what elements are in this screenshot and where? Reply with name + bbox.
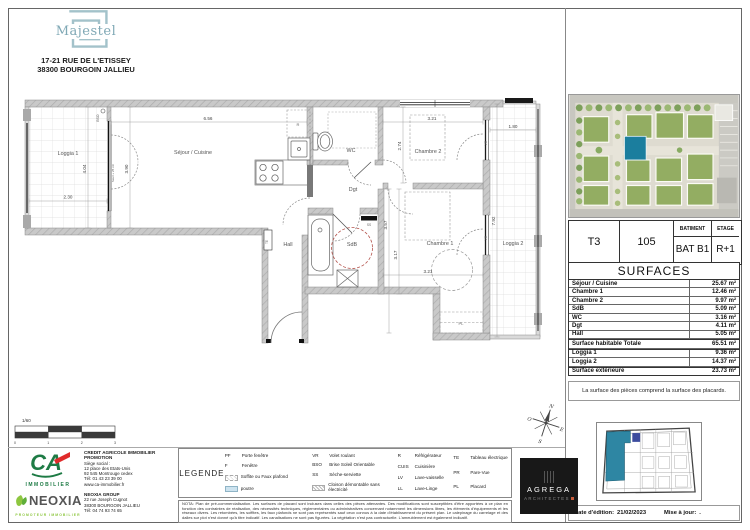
- surface-row: Chambre 29.97 m²: [569, 297, 739, 305]
- te-label: TE: [265, 240, 269, 244]
- dim-loggia1-width: 2.30: [64, 195, 73, 200]
- address-line1: 17-21 RUE DE L'ETISSEY: [0, 56, 172, 65]
- entry-thresholds: [266, 339, 304, 343]
- key-plan-stairwell: [632, 433, 640, 442]
- door-swings: [111, 134, 483, 343]
- architect-subtitle: ARCHITECTES: [524, 496, 574, 501]
- surface-value: 12.46 m²: [689, 288, 739, 295]
- dim-sejour-width: 6.56: [204, 116, 213, 121]
- legend-label: Porte fenêtre: [242, 454, 312, 459]
- surface-row: SdB5.09 m²: [569, 305, 739, 313]
- room-label-sdb: SdB: [347, 242, 358, 248]
- architect-name: AGREGA: [527, 485, 571, 494]
- surface-label: Hall: [569, 331, 689, 337]
- project-address: 17-21 RUE DE L'ETISSEY 38300 BOURGOIN JA…: [0, 56, 172, 74]
- surface-exterior-row: Surface extérieure23.73 m²: [569, 367, 739, 375]
- dim-chambre2-width: 3.21: [428, 116, 437, 121]
- surface-value: 9.36 m²: [689, 350, 739, 357]
- legend-column-3: RRéfrigérateur CUISCuisinière LVLave-vai…: [398, 449, 454, 497]
- loggia-tile-floors: [29, 104, 536, 337]
- unit-type: T3: [569, 221, 619, 262]
- soffite-swatch-icon: [225, 475, 238, 481]
- furniture-outlines: [405, 115, 483, 333]
- nota-disclaimer: NOTA: Plan de pré-commercialisation. Les…: [178, 500, 512, 523]
- floor-plan-sheet: 6.56 3.21 1.80 2.30 3.21 4.04 3.90 2.74 …: [0, 0, 750, 530]
- legend-column-2: VRVolet roulant BSOBrise Soleil Orientab…: [312, 449, 397, 497]
- ca-immobilier-logo: CA IMMOBILIER: [12, 450, 84, 488]
- room-label-hall: Hall: [283, 242, 292, 248]
- wc-fixtures: [313, 112, 376, 151]
- legend-label: Pare-Vue: [470, 471, 511, 476]
- batiment-value: BAT B1: [673, 237, 711, 262]
- edition-date-row: Date d'édition: 21/02/2023 Mise à jour: …: [568, 505, 740, 521]
- surface-value: 25.67 m²: [689, 280, 739, 287]
- surface-label: Loggia 1: [569, 350, 689, 356]
- dim-loggia2-width: 1.80: [509, 124, 518, 129]
- legend-column-1: PFPorte fenêtre FFenêtre Soffite ou Faux…: [225, 449, 312, 497]
- compass-north: N: [547, 403, 555, 411]
- surface-value: 14.37 m²: [689, 358, 739, 365]
- scale-tick-3: 3: [114, 441, 116, 445]
- highlighted-building: [624, 136, 646, 160]
- ca-immobilier-row: CA IMMOBILIER CREDIT AGRICOLE IMMOBILIER…: [12, 450, 174, 488]
- etage-header: ETAGE: [711, 221, 739, 237]
- key-plan-drawing: [597, 423, 701, 500]
- seuil-label: Seuil + 25 cm: [111, 163, 115, 182]
- surface-label: Chambre 2: [569, 298, 689, 304]
- surface-label: Dgt: [569, 323, 689, 329]
- room-label-dgt: Dgt: [349, 187, 358, 193]
- ss-label: SS: [367, 223, 371, 227]
- ca-logo-subtitle: IMMOBILIER: [12, 482, 84, 488]
- surface-value: 65.51 m²: [690, 340, 739, 347]
- compass-rose: N S E O: [521, 398, 565, 445]
- neoxia-text: NEOXIA GROUP 22 rue Joseph Cugnot 38300 …: [84, 492, 174, 513]
- surface-value: 3.16 m²: [689, 314, 739, 321]
- surface-label: SdB: [569, 306, 689, 312]
- surface-label: Surface extérieure: [569, 368, 690, 374]
- legend-label: Placard: [470, 485, 511, 490]
- site-plan-image: [568, 94, 740, 218]
- surfaces-title: SURFACES: [568, 262, 740, 280]
- neoxia-logo-letters: NEOXIA: [29, 493, 82, 508]
- edition-date-value: 21/02/2023: [617, 510, 646, 516]
- update-value: .: [699, 510, 701, 516]
- vr-label-chambre2: VR: [484, 140, 488, 145]
- surface-value: 5.05 m²: [689, 331, 739, 338]
- neoxia-logo-subtitle: PROMOTEUR IMMOBILIER: [12, 513, 84, 517]
- surface-label: Loggia 2: [569, 359, 689, 365]
- legend-abbr: TE: [453, 456, 467, 461]
- surface-value: 23.73 m²: [690, 368, 739, 375]
- neoxia-row: NEOXIA PROMOTEUR IMMOBILIER NEOXIA GROUP…: [12, 492, 174, 517]
- dim-chambre1-height: 3.57: [383, 220, 388, 229]
- neoxia-line: Tél: 04 74 93 74 65: [84, 508, 174, 513]
- etage-value: R+1: [711, 237, 739, 262]
- pl-label: PL: [459, 321, 465, 326]
- compass-west: O: [526, 416, 532, 423]
- vr-label-chambre1: VR: [484, 235, 488, 240]
- legend-abbr: F: [225, 464, 239, 469]
- legend-label: poutre: [241, 487, 312, 492]
- surface-value: 4.11 m²: [689, 322, 739, 329]
- ca-immobilier-text: CREDIT AGRICOLE IMMOBILIER PROMOTION Siè…: [84, 450, 174, 487]
- compass-south: S: [537, 439, 543, 445]
- legend-abbr: BSO: [312, 463, 326, 468]
- legend-abbr: PL: [453, 485, 467, 490]
- legend-abbr: CUIS: [398, 465, 412, 470]
- surface-total-row: Surface habitable Totale65.51 m²: [569, 339, 739, 348]
- scale-tick-2: 2: [81, 441, 83, 445]
- developers-block: CA IMMOBILIER CREDIT AGRICOLE IMMOBILIER…: [12, 450, 174, 524]
- key-plan: [596, 422, 702, 501]
- dim-loggia1-height: 4.04: [82, 164, 87, 173]
- surface-row: Loggia 214.37 m²: [569, 358, 739, 366]
- surfaces-table: Séjour / Cuisine25.67 m² Chambre 112.46 …: [568, 279, 740, 376]
- address-line2: 38300 BOURGOIN JALLIEU: [0, 65, 172, 74]
- surface-row: WC3.16 m²: [569, 314, 739, 322]
- scale-tick-1: 1: [47, 441, 49, 445]
- legend-column-4: TETableau électrique PRPare-Vue PLPlacar…: [453, 449, 511, 497]
- bso-label: BSO: [96, 114, 100, 122]
- neoxia-logo-icon: NEOXIA: [13, 492, 83, 509]
- legend-abbr: R: [398, 454, 412, 459]
- surface-value: 5.09 m²: [689, 305, 739, 312]
- room-label-sejour: Séjour / Cuisine: [174, 150, 212, 156]
- room-label-chambre2: Chambre 2: [415, 149, 442, 155]
- surface-row: Hall5.05 m²: [569, 331, 739, 339]
- legend-label: Soffite ou Faux plafond: [241, 475, 312, 480]
- legend-abbr: PR: [453, 471, 467, 476]
- surface-label: Surface habitable Totale: [569, 341, 690, 347]
- dim-chambre2-height: 2.74: [397, 141, 402, 150]
- legend-label: Volet roulant: [329, 454, 397, 459]
- dim-sdb-height: 3.17: [393, 250, 398, 259]
- surface-label: Séjour / Cuisine: [569, 281, 689, 287]
- window-lintel: [505, 98, 533, 103]
- legend-label: Brise Soleil Orientable: [329, 463, 397, 468]
- legend-abbr: SS: [312, 473, 326, 478]
- unit-info-table: T3 105 BATIMENT ETAGE BAT B1 R+1: [568, 220, 742, 265]
- site-plan-aerial: [569, 95, 739, 217]
- legend-label: Lave-vaisselle: [415, 476, 454, 481]
- legend-label: Lave-Linge: [415, 487, 454, 492]
- legend: LEGENDE PFPorte fenêtre FFenêtre Soffite…: [178, 448, 512, 498]
- architect-subtitle-text: ARCHITECTES: [524, 496, 570, 501]
- floor-plan-drawing: 6.56 3.21 1.80 2.30 3.21 4.04 3.90 2.74 …: [8, 85, 565, 445]
- edition-date-label: Date d'édition:: [574, 510, 614, 516]
- architect-accent-dot: [571, 497, 574, 500]
- scale-tick-0: 0: [14, 441, 16, 445]
- brand-name: Majestel: [0, 24, 172, 39]
- legend-abbr: PF: [225, 454, 239, 459]
- dim-loggia2-height: 7.92: [491, 216, 496, 225]
- legend-label: Cuisinière: [415, 465, 454, 470]
- legend-title: LEGENDE: [179, 449, 225, 497]
- legend-label: Cloison démontable sans électricité: [328, 483, 397, 493]
- surface-row: Dgt4.11 m²: [569, 322, 739, 330]
- ca-website: www.ca-immobilier.fr: [84, 482, 174, 487]
- legend-label: Réfrigérateur: [415, 454, 454, 459]
- dim-chambre1-width: 3.21: [424, 269, 433, 274]
- neoxia-logo: NEOXIA PROMOTEUR IMMOBILIER: [12, 492, 84, 517]
- room-label-loggia1: Loggia 1: [58, 151, 79, 157]
- room-label-chambre1: Chambre 1: [427, 241, 454, 247]
- legend-label: Fenêtre: [242, 464, 312, 469]
- batiment-header: BATIMENT: [673, 221, 711, 237]
- surface-row: Chambre 112.46 m²: [569, 288, 739, 296]
- legend-abbr: VR: [312, 454, 326, 459]
- unit-number: 105: [619, 221, 673, 262]
- room-label-loggia2: Loggia 2: [503, 241, 524, 247]
- scale-bar: 1/60 0 1 2 3: [14, 418, 116, 445]
- update-label: Mise à jour:: [664, 510, 696, 516]
- ca-name: CREDIT AGRICOLE IMMOBILIER PROMOTION: [84, 450, 174, 461]
- poutre-swatch-icon: [225, 486, 238, 492]
- cloison-swatch-icon: [312, 485, 325, 491]
- surface-value: 9.97 m²: [689, 297, 739, 304]
- dim-sejour-height: 3.90: [124, 164, 129, 173]
- kitchen-fixtures: [255, 110, 310, 185]
- legend-label: Sèche-serviette: [329, 473, 397, 478]
- surfaces-note: La surface des pièces comprend la surfac…: [568, 381, 740, 401]
- room-label-wc: WC: [347, 148, 356, 154]
- surface-row: Séjour / Cuisine25.67 m²: [569, 280, 739, 288]
- legend-abbr: LL: [398, 487, 412, 492]
- legend-label: Tableau électrique: [470, 456, 511, 461]
- surface-row: Loggia 19.36 m²: [569, 349, 739, 358]
- column-icon: [544, 471, 554, 483]
- fridge-label: R: [297, 122, 300, 127]
- chambre2-window: [400, 100, 470, 107]
- ca-logo-icon: CA: [26, 450, 70, 478]
- surface-label: WC: [569, 315, 689, 321]
- title-block-divider: [565, 8, 566, 522]
- scale-label: 1/60: [22, 418, 31, 423]
- legend-abbr: LV: [398, 476, 412, 481]
- surface-label: Chambre 1: [569, 289, 689, 295]
- architect-logo: AGREGA ARCHITECTES: [520, 458, 578, 514]
